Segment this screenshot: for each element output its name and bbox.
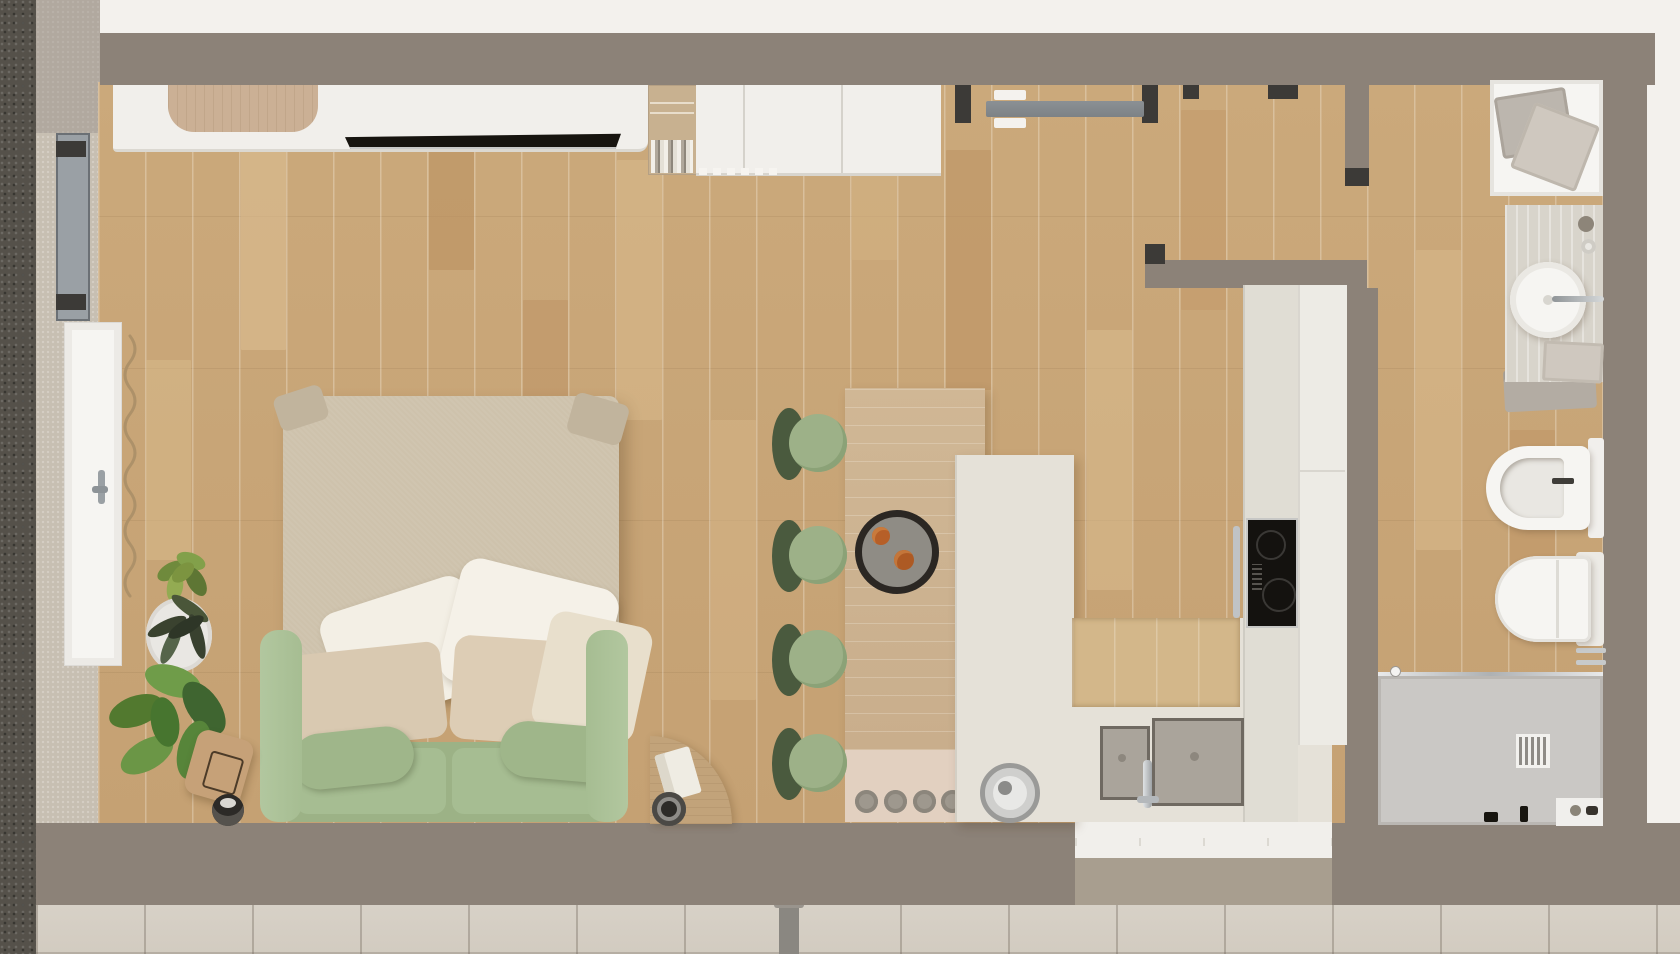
window-bracket xyxy=(56,141,86,157)
shower-glass-knob xyxy=(1390,666,1401,677)
built-in-desk xyxy=(168,85,318,132)
towel-rail xyxy=(1576,660,1606,665)
counter-wood-inset xyxy=(1072,618,1240,707)
bidet-mount xyxy=(1588,438,1604,538)
towel-rail xyxy=(1576,648,1606,653)
shower-drain xyxy=(1516,734,1550,768)
counter-below-cabinets xyxy=(1298,745,1332,822)
bidet-bowl xyxy=(1500,458,1564,518)
floor-plank xyxy=(946,150,991,390)
floor-plank xyxy=(241,120,286,350)
round-steel-sink xyxy=(980,763,1040,823)
wall-stub xyxy=(1183,85,1199,99)
vanity-towel xyxy=(1542,340,1604,383)
entry-door-jamb-right xyxy=(1142,85,1158,123)
bidet-faucet xyxy=(1552,478,1574,484)
spice-jar xyxy=(913,790,936,813)
fruit xyxy=(894,550,914,570)
round-sink-drain xyxy=(998,781,1012,795)
soap-dispenser xyxy=(1581,239,1596,254)
entry-door-handle xyxy=(994,118,1026,128)
sofa-arm-left xyxy=(260,630,302,822)
floor-plank xyxy=(617,160,662,420)
door-jamb xyxy=(1345,168,1369,186)
shower-glass-rail xyxy=(1378,672,1603,676)
books-row xyxy=(651,140,693,173)
spice-jar xyxy=(855,790,878,813)
floor-plan-canvas xyxy=(0,0,1680,954)
soap-dispenser xyxy=(1578,216,1594,232)
cabinet-seam xyxy=(743,85,745,173)
gravel-strip xyxy=(0,0,36,954)
double-basin-sink-right xyxy=(1152,718,1244,806)
sink-drain xyxy=(1118,754,1126,762)
planter-band xyxy=(1075,858,1332,905)
cabinet-handles xyxy=(699,168,779,175)
table-lamp-disc xyxy=(652,792,686,826)
cabinet-seam xyxy=(1298,470,1345,472)
terrace-stone-tiles xyxy=(36,898,1680,954)
wall-cabinets xyxy=(696,85,941,176)
wall-kitchen-bath xyxy=(1345,288,1378,828)
toilet xyxy=(1495,556,1591,642)
wall-stub xyxy=(1268,85,1298,99)
casement-window xyxy=(56,133,90,321)
toilet-seat-line xyxy=(1556,560,1559,638)
floor-plank xyxy=(1087,330,1132,590)
wall-hallway xyxy=(1145,260,1367,288)
floor-plank xyxy=(711,420,756,700)
shower-shelf-item xyxy=(1570,805,1581,816)
bar-stool-seat xyxy=(789,734,847,792)
kitchen-faucet-spout xyxy=(1137,796,1159,803)
exterior-drain-pipe xyxy=(779,902,799,954)
puck-lamp-top xyxy=(220,798,236,808)
shower-handle xyxy=(1520,806,1528,822)
entry-door-handle xyxy=(994,90,1026,100)
oven-handle xyxy=(1233,526,1240,618)
sofa-arm-right xyxy=(586,630,628,822)
shower-handle xyxy=(1484,812,1498,822)
french-door-handle-knob xyxy=(92,486,108,493)
kitchen-window-mullions xyxy=(1075,838,1332,846)
induction-cooktop xyxy=(1246,518,1298,628)
door-jamb xyxy=(1145,244,1165,264)
bar-stool-seat xyxy=(789,630,847,688)
spice-jar xyxy=(884,790,907,813)
bookshelf-shelf xyxy=(650,102,694,104)
floor-plank xyxy=(1416,250,1461,550)
wall-right xyxy=(1603,33,1647,905)
shower-shelf-item xyxy=(1586,806,1598,815)
cabinet-seam xyxy=(841,85,843,173)
exterior-ledge-top-shade xyxy=(36,0,100,133)
bookshelf-shelf xyxy=(650,112,694,114)
entry-door-jamb-left xyxy=(955,85,971,123)
tall-cabinet-column xyxy=(1298,285,1347,745)
bar-stool-seat xyxy=(789,526,847,584)
wall-bottom xyxy=(36,823,1680,905)
fruit xyxy=(872,527,890,545)
window-bracket xyxy=(56,294,86,310)
sink-drain xyxy=(1190,752,1199,761)
bar-stool-seat xyxy=(789,414,847,472)
entry-sliding-door xyxy=(986,101,1144,117)
wall-top xyxy=(100,33,1655,85)
wavy-curtain xyxy=(110,330,154,610)
vanity-faucet xyxy=(1552,296,1604,302)
